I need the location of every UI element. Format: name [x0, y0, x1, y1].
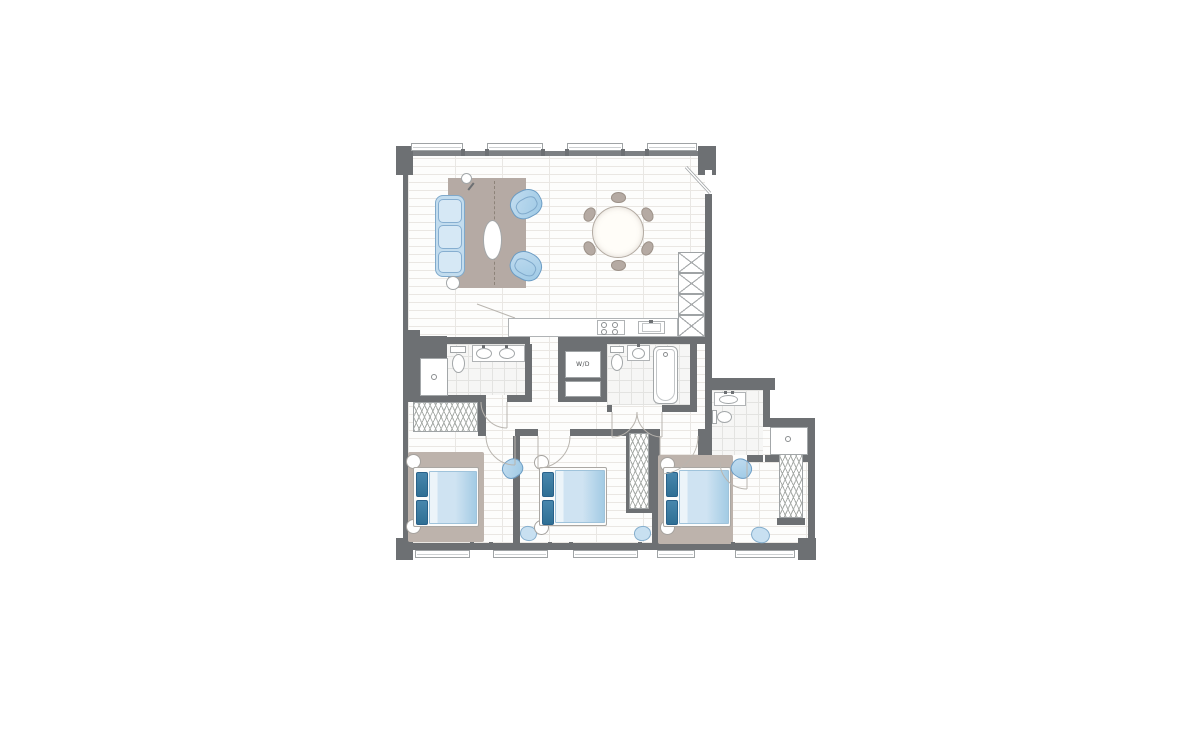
- closet-hangers-icon: [413, 402, 478, 432]
- bed-pillow: [416, 500, 428, 525]
- burner-icon: [601, 322, 607, 328]
- door-leaf-icon: [475, 302, 517, 320]
- wall: [403, 151, 710, 156]
- wall: [808, 427, 815, 547]
- sink-basin: [642, 323, 661, 332]
- bed-duvet: [555, 470, 605, 523]
- dining-chair: [611, 260, 626, 271]
- faucet-icon: [482, 345, 485, 348]
- window-mullion: [645, 149, 649, 156]
- washer-dryer-unit: W/D: [565, 351, 601, 378]
- window-mullion: [548, 542, 552, 550]
- vanity-sink-icon: [499, 348, 515, 359]
- window-mullion: [489, 542, 493, 550]
- window: [735, 550, 795, 558]
- wall: [662, 405, 697, 412]
- faucet-icon: [637, 344, 640, 347]
- floor-plan: W/D: [395, 140, 820, 565]
- window-mullion: [653, 542, 657, 550]
- bathtub-drain-icon: [663, 352, 668, 357]
- faucet-icon: [724, 391, 727, 394]
- wall: [403, 337, 530, 344]
- vanity-sink-icon: [719, 395, 738, 404]
- shower-drain-icon: [431, 374, 437, 380]
- burner-icon: [601, 329, 607, 335]
- washer-dryer-label: W/D: [576, 362, 590, 368]
- window-mullion: [569, 542, 573, 550]
- shower-drain-icon: [785, 436, 791, 442]
- sofa-cushion: [438, 251, 462, 273]
- pantry-cabinet: [678, 294, 705, 315]
- burner-icon: [612, 322, 618, 328]
- toilet-tank: [450, 346, 466, 353]
- page: W/D: [0, 0, 1200, 733]
- double-door-swing-icon: [612, 412, 662, 438]
- window: [493, 550, 548, 558]
- wall: [690, 344, 697, 412]
- wall: [420, 395, 483, 402]
- wall: [403, 543, 812, 550]
- window-mullion: [621, 149, 625, 156]
- window: [647, 143, 697, 151]
- vanity-sink-icon: [632, 348, 645, 359]
- wall: [777, 518, 805, 525]
- coffee-table: [483, 220, 502, 260]
- wall: [747, 455, 763, 462]
- closet-hangers-icon: [629, 433, 649, 509]
- pantry-cabinet: [678, 252, 705, 273]
- wall: [525, 344, 532, 395]
- sofa-cushion: [438, 225, 462, 249]
- door-swing-icon: [486, 436, 515, 465]
- wall: [515, 429, 538, 436]
- toilet-icon: [611, 354, 623, 371]
- vanity-sink-icon: [476, 348, 492, 359]
- window: [487, 143, 543, 151]
- faucet-icon: [505, 345, 508, 348]
- dining-chair: [611, 192, 626, 203]
- bed-pillow: [666, 472, 678, 497]
- bed-duvet: [429, 471, 477, 524]
- pantry-cabinet: [678, 273, 705, 294]
- linen-cabinet: [565, 381, 601, 397]
- faucet-icon: [731, 391, 734, 394]
- window-mullion: [470, 542, 474, 550]
- window: [657, 550, 695, 558]
- pantry-cabinet: [678, 315, 705, 337]
- window-mullion: [565, 149, 569, 156]
- wall: [705, 378, 775, 390]
- window: [573, 550, 638, 558]
- burner-icon: [612, 329, 618, 335]
- entry-door-icon: [682, 165, 712, 195]
- door-swing-icon: [720, 462, 747, 489]
- window-mullion: [638, 542, 642, 550]
- side-table: [446, 276, 460, 290]
- window-mullion: [731, 542, 735, 550]
- door-swing-icon: [481, 402, 507, 428]
- toilet-icon: [717, 411, 732, 423]
- door-swing-icon: [660, 436, 698, 474]
- bed-pillow: [542, 500, 554, 525]
- bed-pillow: [542, 472, 554, 497]
- toilet-tank: [610, 346, 624, 353]
- window: [567, 143, 623, 151]
- armchair-seat: [513, 194, 539, 218]
- wall: [798, 538, 816, 560]
- bed-pillow: [666, 500, 678, 525]
- wall: [558, 337, 705, 344]
- window-mullion: [461, 149, 465, 156]
- window: [415, 550, 470, 558]
- toilet-icon: [452, 354, 465, 373]
- window-mullion: [485, 149, 489, 156]
- wall: [705, 194, 712, 378]
- wall: [763, 418, 815, 427]
- closet-hangers-icon: [779, 453, 803, 518]
- floor-lamp-icon: [461, 173, 472, 184]
- dining-table: [592, 206, 644, 258]
- bed-pillow: [416, 472, 428, 497]
- window-mullion: [541, 149, 545, 156]
- wall: [507, 395, 532, 402]
- door-swing-icon: [538, 436, 570, 468]
- armchair-seat: [512, 256, 538, 280]
- window: [411, 143, 463, 151]
- wall: [607, 405, 612, 412]
- faucet-icon: [649, 320, 653, 323]
- sofa-cushion: [438, 199, 462, 223]
